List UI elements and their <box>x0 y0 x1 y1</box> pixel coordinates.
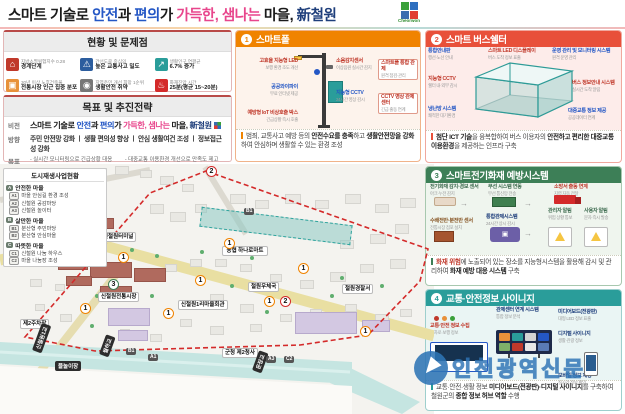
wifi-icon <box>314 69 320 75</box>
town-map: 도시재생사업현황 A안전한 마을 A1마을 안심길 환경 조성 A2신철원 공감… <box>0 164 434 414</box>
vision-row: 비전 스마트 기술로 안전과 편의가 가득한, 샘나는 마을, 新철원 <box>4 117 231 131</box>
traffic-scene-icon <box>434 316 455 321</box>
panel2-illustration: 통합안내판행선·노선 안내 지능형 CCTV쉘터 내·외부 감시 냉난방 시스템… <box>426 47 621 130</box>
poi-label-village-hall: 신철원1리마을회관 <box>178 300 228 310</box>
flow-arrow-icon: → <box>524 199 532 208</box>
waterplay-tag: 물놀이장 <box>55 361 81 371</box>
status-grid: 지방소멸위험지수 0.28경계단계 간선도로 중심의높은 교통사고 밀도 생활인… <box>4 52 231 98</box>
flow-arrow-icon: → <box>460 199 468 208</box>
user-alert-card <box>584 227 608 247</box>
media-board-icon <box>496 330 552 354</box>
fire-sensor-icon <box>434 197 456 206</box>
status-value: 높은 교통사고 밀도 <box>95 64 139 70</box>
area-badge: A3 <box>266 356 276 363</box>
map-badge-1: 1 <box>80 303 91 314</box>
status-value: 생활안전 취약 <box>95 85 144 91</box>
map-badge-1: 1 <box>163 308 174 319</box>
callout: 운영 관리 및 모니터링 시스템원격 운영 관리 <box>552 49 618 60</box>
poster: 스마트 기술로 안전과 편의가 가득한, 샘나는 마을, 新철원 Cheorwo… <box>0 0 625 414</box>
info-collection-box <box>430 342 488 372</box>
smart-pole-panel: 1스마트폴 고효율 지능형 LED보행 환경 조도 개선 공공와이파이무료 인터… <box>235 30 421 162</box>
legend-item: A1마을 안심길 환경 조성 <box>9 192 104 200</box>
poi-label-post-office: 철원우체국 <box>248 282 279 292</box>
panel3-illustration: 전기화재 감지·경보 센서아크·누전 감지 수배전반·분전반 센서전통시장 점포… <box>426 183 621 255</box>
control-box: 스마트폴 통합 관제원격 점검·관리 <box>378 59 418 80</box>
status-item: 지역주민 개선 희망 1순위생활안전 취약 <box>80 75 154 96</box>
smart-bus-shelter-panel: 2스마트 버스쉘터 통합안내판행선·노선 안내 지능형 CCTV쉘터 내·외부 … <box>425 30 622 163</box>
panel4-illustration: 교통·안전 정보 수집교차로·보행 정보 관제센터 연계 시스템통합 정보 분석… <box>426 306 621 380</box>
legend-group: C따뜻한 마을 <box>6 241 104 250</box>
old-buildings-icon <box>6 79 19 92</box>
map-badge-2: 2 <box>280 296 291 307</box>
legend-item: B2분산형 안심마을 <box>9 232 104 240</box>
title-divider <box>0 27 625 29</box>
title-part: 가 <box>160 8 176 24</box>
status-value: 경계단계 <box>21 64 65 70</box>
direction-row: 방향 주민 안전망 강화 ㅣ 생활 편의성 향상 ㅣ 안심 생활여건 조성 ㅣ … <box>4 131 231 153</box>
wireless-module-icon <box>492 197 516 207</box>
info-signage-panel: 4교통·안전정보 사이니지 교통·안전 정보 수집교차로·보행 정보 관제센터 … <box>425 289 622 411</box>
title-part: 과 <box>118 8 134 24</box>
callout: 공공와이파이무료 인터넷 제공 <box>240 85 298 96</box>
callout: 대중교통 정보 제공공공데이터 연계 <box>568 109 620 120</box>
title-part: 안전 <box>92 8 118 24</box>
population-growth-icon <box>155 58 168 71</box>
cctv-icon <box>326 65 333 69</box>
callout: 사용자 알림문자 즉시 발송 <box>584 209 614 220</box>
area-badge: A1 <box>148 354 158 361</box>
legend-title: 도시재생사업현황 <box>6 170 104 182</box>
desc-bullet <box>241 132 243 139</box>
area-badge: B1 <box>126 348 136 355</box>
callout: 교통·안전 정보 수집교차로·보행 정보 <box>430 324 488 335</box>
cheorwon-logo: Cheorwon <box>396 2 422 23</box>
vision-label: 비전 <box>8 119 26 130</box>
fire-truck-icon <box>554 195 576 204</box>
map-badge-2: 2 <box>206 166 217 177</box>
map-badge-1: 1 <box>298 263 309 274</box>
callout: 냉난방 시스템쾌적한 대기환경 <box>428 107 470 118</box>
page-title: 스마트 기술로 안전과 편의가 가득한, 샘나는 마을, 新철원 <box>8 4 408 26</box>
smartphone-icon <box>584 352 598 376</box>
panel1-number: 1 <box>241 34 252 45</box>
callout: 미디어보드(전광판)대형 LED 정보 표출 <box>558 310 618 321</box>
status-item: 30년 이상 노후건축물전통시장 인근 집중 분포 <box>6 75 80 96</box>
mini-logo-icon <box>214 122 221 129</box>
control-system-icon: ▣ <box>490 227 520 242</box>
legend-group-name: 안전한 마을 <box>15 183 43 192</box>
map-badge-3: 3 <box>108 279 119 290</box>
status-value: 전통시장 인근 집중 분포 <box>21 85 77 91</box>
building-decline-icon <box>6 58 19 71</box>
panel1-header: 1스마트폴 <box>236 31 420 47</box>
legend-item: C1신철원 나눔 하우스 <box>9 250 104 258</box>
title-part: 마을, <box>260 8 296 24</box>
panel1-title: 스마트폴 <box>256 32 289 46</box>
legend-item: C2마을 나눔장 조성 <box>9 257 104 265</box>
callout: 관리자 알림위험 상황 통보 <box>548 209 578 220</box>
status-panel-title: 현황 및 문제점 <box>4 32 231 52</box>
goal-strategy-panel: 목표 및 추진전략 비전 스마트 기술로 안전과 편의가 가득한, 샘나는 마을… <box>3 95 232 162</box>
poi-label-police-station: 철원경찰서 <box>342 284 373 294</box>
poi-label-traditional-market: 신철원전통시장 <box>98 292 139 302</box>
legend-group: A안전한 마을 <box>6 183 104 192</box>
fire-truck-icon <box>155 79 168 92</box>
callout: 소음감지센서이상음원 실시간 감지 <box>336 59 376 70</box>
direction-label: 방향 <box>8 133 26 144</box>
callout: 무선 시스템 연동무선 통신망 전송 <box>488 185 536 196</box>
vision-text: 스마트 기술로 안전과 편의가 가득한, 샘나는 마을, 新철원 <box>30 119 221 131</box>
goal-item: - 대중교통 이용환경 개선으로 만족도 제고 <box>125 155 227 163</box>
status-item: 지방소멸위험지수 0.28경계단계 <box>6 54 80 75</box>
warning-icon <box>555 232 565 241</box>
panel2-title: 스마트 버스쉘터 <box>446 32 507 46</box>
status-problems-panel: 현황 및 문제점 지방소멸위험지수 0.28경계단계 간선도로 중심의높은 교통… <box>3 30 232 92</box>
panel4-title: 교통·안전정보 사이니지 <box>446 291 534 305</box>
callout: 수배전반·분전반 센서전통시장 점포 설치 <box>430 219 482 230</box>
poi-label-county-annex: 군청 제2청사 <box>222 348 258 358</box>
distribution-panel-icon <box>434 231 454 242</box>
map-badge-1: 1 <box>360 326 371 337</box>
title-part: 新철원 <box>297 8 337 24</box>
cheorwon-logo-icon <box>401 2 417 18</box>
legend-item: A3신철원 놀이터 <box>9 207 104 215</box>
panel1-illustration: 고효율 지능형 LED보행 환경 조도 개선 공공와이파이무료 인터넷 제공 예… <box>236 47 420 129</box>
panel3-header: 3스마트전기화재 예방시스템 <box>426 167 621 183</box>
callout: 고효율 지능형 LED보행 환경 조도 개선 <box>240 59 298 70</box>
map-badge-1: 1 <box>224 238 235 249</box>
manager-alert-card <box>548 227 572 247</box>
panel4-header: 4교통·안전정보 사이니지 <box>426 290 621 306</box>
panel3-description: 화재 위험에 노출되어 있는 장소를 지능형시스템을 활용해 감시 및 관리하여… <box>426 255 621 279</box>
callout: 전기화재 감지·경보 센서아크·누전 감지 <box>430 185 482 196</box>
legend-item: A2신철원 공감마당 <box>9 200 104 208</box>
status-item: 화재진압 시간25분(평균 15~20분) <box>155 75 229 96</box>
panel3-title: 스마트전기화재 예방시스템 <box>446 168 548 182</box>
legend-group-badge: A <box>6 185 13 191</box>
bus-shelter-icon <box>468 59 578 121</box>
title-part: 편의 <box>134 8 160 24</box>
smart-pole-icon <box>322 53 326 127</box>
title-part: 스마트 기술로 <box>8 8 92 24</box>
status-item: 간선도로 중심의높은 교통사고 밀도 <box>80 54 154 75</box>
callout: 스마트 LED 디스플레이버스 도착 정보 표출 <box>488 49 542 60</box>
warning-icon <box>591 232 601 241</box>
callout: 예방형 IoT 비상호출 박스긴급상황 즉시 호출 <box>240 111 298 122</box>
area-badge: B1 <box>244 208 254 215</box>
regeneration-legend: 도시재생사업현황 A안전한 마을 A1마을 안심길 환경 조성 A2신철원 공감… <box>3 168 107 267</box>
status-value: 25분(평균 15~20분) <box>170 85 218 91</box>
callout: 버스 정보안내 시스템실시간 도착 알림 <box>572 81 620 92</box>
panel2-description: 첨단 ICT 기술을 융복합하여 버스 이용자의 안전하고 편리한 대중교통 이… <box>426 130 621 154</box>
callout: 관제센터 연계 시스템통합 정보 분석 <box>496 308 552 319</box>
screen-icon <box>435 345 483 361</box>
desc-bullet <box>431 133 433 140</box>
goal-item: - 실시간 모니터링으로 긴급상황 대응 <box>30 155 119 163</box>
panel2-header: 2스마트 버스쉘터 <box>426 31 621 47</box>
title-part: 가득한, <box>176 8 218 24</box>
title-part: 샘나는 <box>218 8 260 24</box>
legend-group: B살만한 마을 <box>6 216 104 225</box>
logo-caption: Cheorwon <box>396 18 422 23</box>
direction-text: 주민 안전망 강화 ㅣ 생활 편의성 향상 ㅣ 안심 생활여건 조성 ㅣ 정보접… <box>30 133 227 153</box>
callout: 지능형 CCTV쉘터 내·외부 감시 <box>428 77 468 88</box>
status-item: 생활인구 연평균6.7% 증가 <box>155 54 229 75</box>
cctv-icon <box>80 79 93 92</box>
status-value: 6.7% 증가 <box>170 64 201 70</box>
media-board-legs <box>508 354 540 358</box>
control-box: CCTV 영상 관제 센터긴급 출동 연계 <box>378 93 418 114</box>
map-badge-1: 1 <box>118 252 129 263</box>
fire-prevention-panel: 3스마트전기화재 예방시스템 전기화재 감지·경보 센서아크·누전 감지 수배전… <box>425 166 622 286</box>
traffic-accident-icon <box>80 58 93 71</box>
callout: 통합안내판행선·노선 안내 <box>428 49 472 60</box>
callout: 디지털 사이니지생활·관광 정보 <box>558 332 618 343</box>
legend-item: B1분산형 주민마당 <box>9 225 104 233</box>
map-badge-1: 1 <box>195 275 206 286</box>
callout: 통합관제시스템24시간 상시 감시 <box>486 215 530 226</box>
flow-arrow-icon: → <box>524 229 532 238</box>
map-badge-1: 1 <box>264 296 275 307</box>
goal-panel-title: 목표 및 추진전략 <box>4 97 231 117</box>
panel2-number: 2 <box>431 34 442 45</box>
panel1-description: 범죄, 교통사고 예방 등의 안전수요를 충족하고 생활안전망을 강화하여 안심… <box>236 129 420 153</box>
area-badge: C2 <box>284 356 294 363</box>
callout: 지능형 CCTV24시간 영상 감시 <box>336 91 376 102</box>
